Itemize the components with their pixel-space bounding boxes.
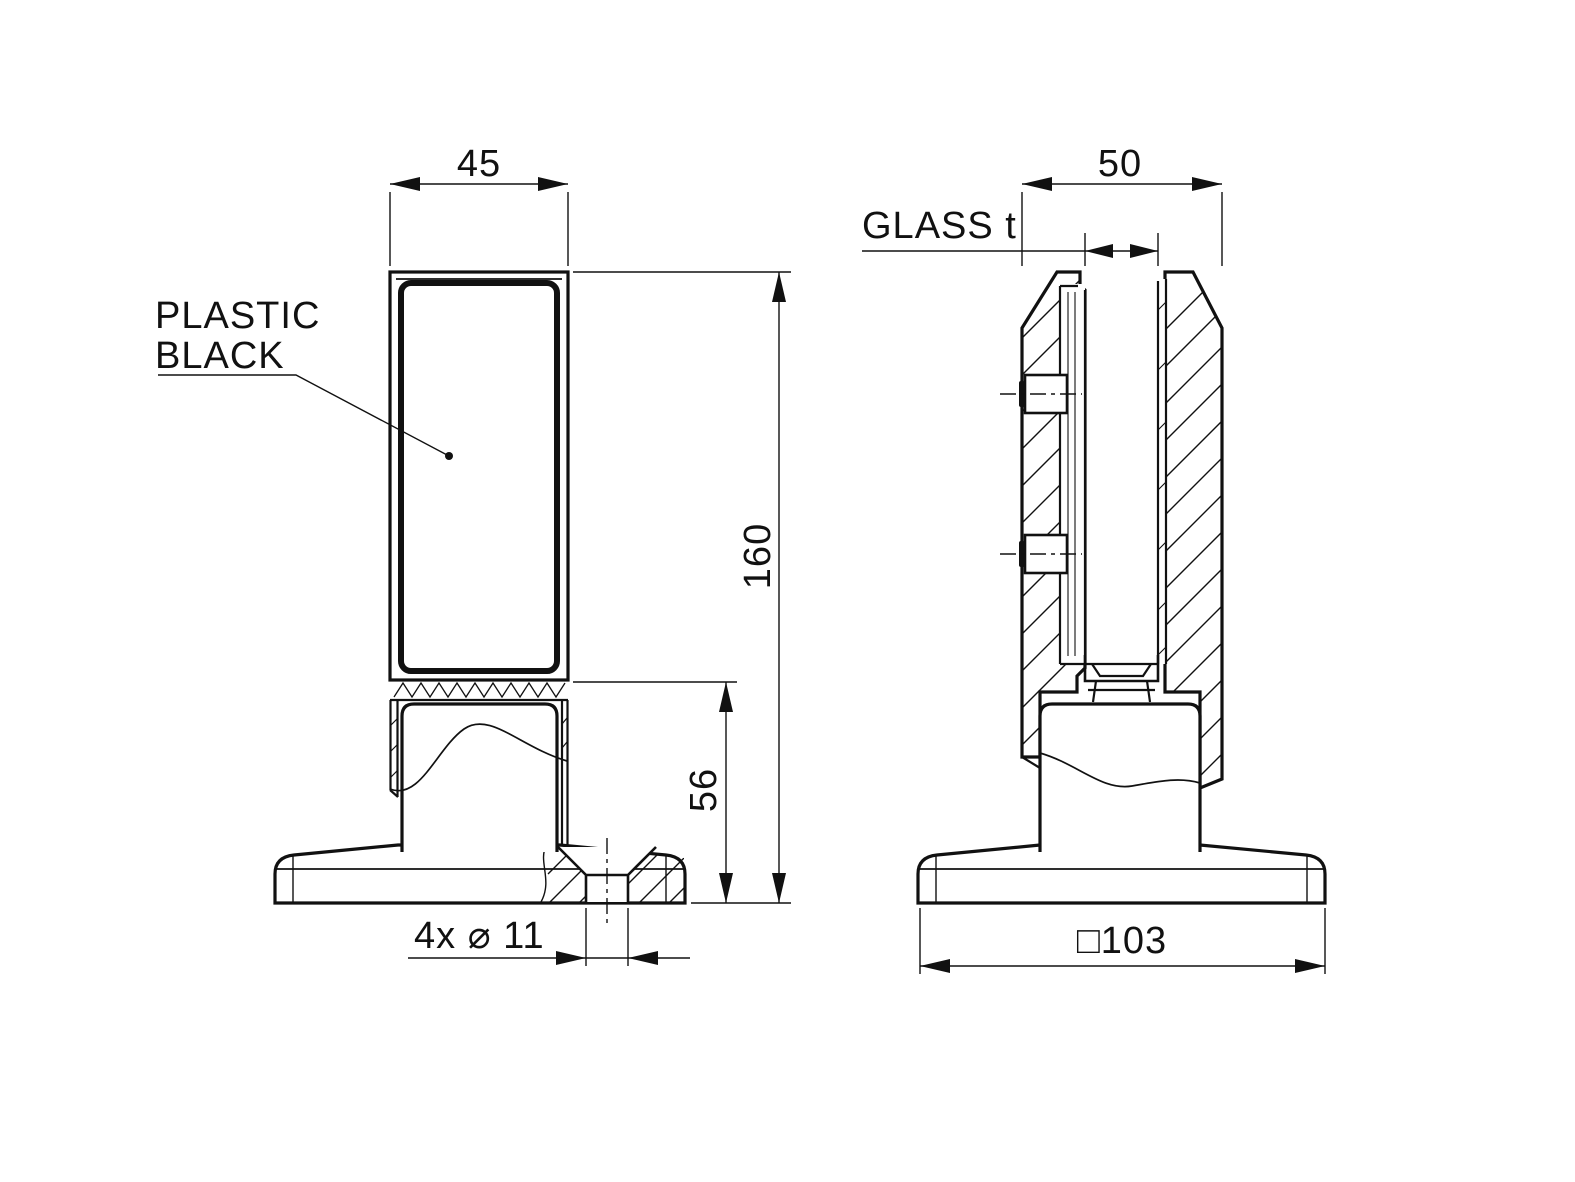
note-leader-dot <box>445 452 453 460</box>
left-jaw-hatch <box>510 250 1517 850</box>
dim-arrow <box>719 682 733 712</box>
dim-height-text: 160 <box>737 523 779 589</box>
front-gasket-band <box>390 683 568 700</box>
front-dim-width: 45 <box>390 143 568 266</box>
side-base-outline <box>918 845 1325 903</box>
dim-arrow <box>772 873 786 903</box>
dim-arrow <box>556 951 586 965</box>
glass-rest-feet <box>1088 681 1155 702</box>
technical-drawing: PLASTIC BLACK 45 160 56 <box>0 0 1575 1182</box>
dim-arrow <box>1085 244 1113 258</box>
dim-arrow <box>628 951 658 965</box>
dim-base-height-text: 56 <box>683 768 725 812</box>
dim-arrow <box>1022 177 1052 191</box>
side-slot-bottom <box>1085 655 1158 702</box>
dim-arrow <box>772 272 786 302</box>
side-dim-glass: GLASS t <box>862 205 1158 266</box>
dim-glass-text: GLASS t <box>862 205 1017 247</box>
front-view: PLASTIC BLACK 45 160 56 <box>155 143 791 966</box>
side-view: 50 GLASS t □103 <box>510 143 1575 974</box>
front-plastic-insert <box>401 283 557 671</box>
gasket-band-zigzag <box>394 683 565 697</box>
note-line2: BLACK <box>155 335 285 377</box>
dim-base-width-text: □103 <box>1077 920 1167 962</box>
dim-depth-text: 50 <box>1098 143 1142 185</box>
left-gasket-fill <box>1060 284 1085 664</box>
side-spigot-body <box>1040 704 1200 852</box>
front-dim-holes: 4x ⌀ 11 <box>408 908 690 966</box>
glass-rest-top <box>1085 664 1158 676</box>
dim-arrow <box>1130 244 1158 258</box>
side-left-jaw <box>510 250 1517 850</box>
dim-arrow <box>538 177 568 191</box>
side-base <box>918 845 1325 903</box>
drawing-svg: PLASTIC BLACK 45 160 56 <box>0 0 1575 1182</box>
dim-arrow <box>920 959 950 973</box>
front-dim-height: 160 <box>573 272 791 903</box>
dim-holes-text: 4x ⌀ 11 <box>414 915 545 957</box>
side-dim-depth: 50 <box>1022 143 1222 266</box>
front-spigot-body <box>402 704 557 852</box>
side-dim-base-width: □103 <box>920 908 1325 974</box>
dim-arrow <box>1192 177 1222 191</box>
note-line1: PLASTIC <box>155 295 320 337</box>
dim-width-text: 45 <box>457 143 501 185</box>
dim-arrow <box>719 873 733 903</box>
dim-arrow <box>1295 959 1325 973</box>
dim-arrow <box>390 177 420 191</box>
